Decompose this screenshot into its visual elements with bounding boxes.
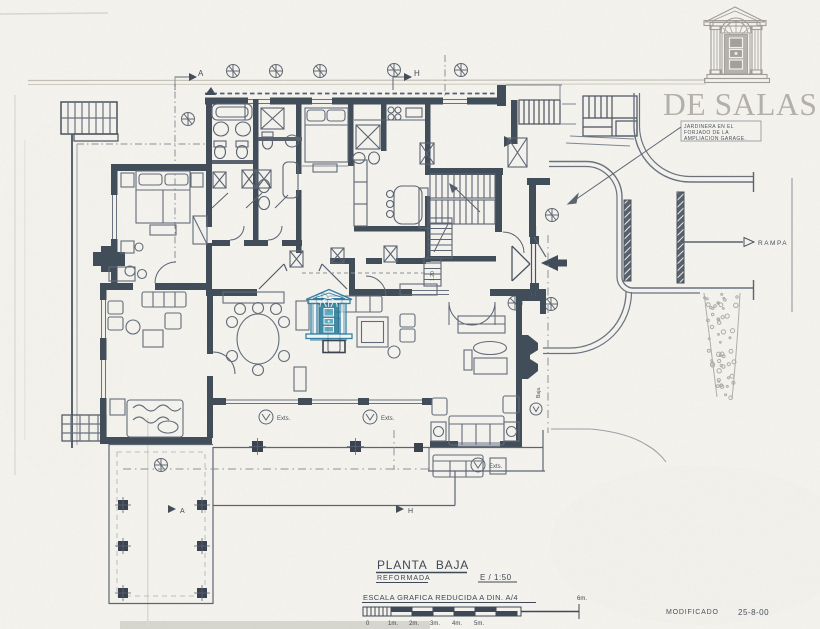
svg-text:PLANTA BAJA: PLANTA BAJA bbox=[377, 558, 469, 572]
svg-text:Exts.: Exts. bbox=[381, 416, 395, 422]
svg-text:A: A bbox=[180, 508, 185, 515]
svg-text:Exts.: Exts. bbox=[489, 464, 503, 470]
svg-text:Exts.: Exts. bbox=[277, 416, 291, 422]
svg-text:1m.: 1m. bbox=[388, 621, 398, 627]
svg-text:Baja.: Baja. bbox=[536, 387, 542, 398]
svg-text:ESCALA GRAFICA REDUCIDA A: ESCALA GRAFICA REDUCIDA A DIN. A/4 bbox=[363, 593, 518, 602]
svg-text:6m.: 6m. bbox=[577, 596, 587, 602]
svg-text:MODIFICADO: MODIFICADO bbox=[666, 609, 719, 616]
svg-text:DE SALAS: DE SALAS bbox=[663, 87, 817, 122]
svg-text:A: A bbox=[198, 69, 204, 78]
svg-text:4m.: 4m. bbox=[452, 621, 462, 627]
svg-text:E / 1:50: E / 1:50 bbox=[480, 573, 512, 582]
svg-text:H: H bbox=[414, 69, 420, 78]
svg-text:25-8-00: 25-8-00 bbox=[738, 608, 769, 617]
svg-text:1.20: 1.20 bbox=[430, 271, 436, 281]
svg-text:REFORMADA: REFORMADA bbox=[377, 575, 431, 582]
svg-text:H: H bbox=[408, 508, 413, 515]
svg-text:3m.: 3m. bbox=[430, 621, 440, 627]
svg-text:AMPLIACION GARAGE.: AMPLIACION GARAGE. bbox=[684, 136, 746, 142]
svg-text:2m.: 2m. bbox=[409, 621, 419, 627]
svg-text:5m.: 5m. bbox=[474, 621, 484, 627]
svg-text:RAMPA: RAMPA bbox=[758, 240, 788, 247]
